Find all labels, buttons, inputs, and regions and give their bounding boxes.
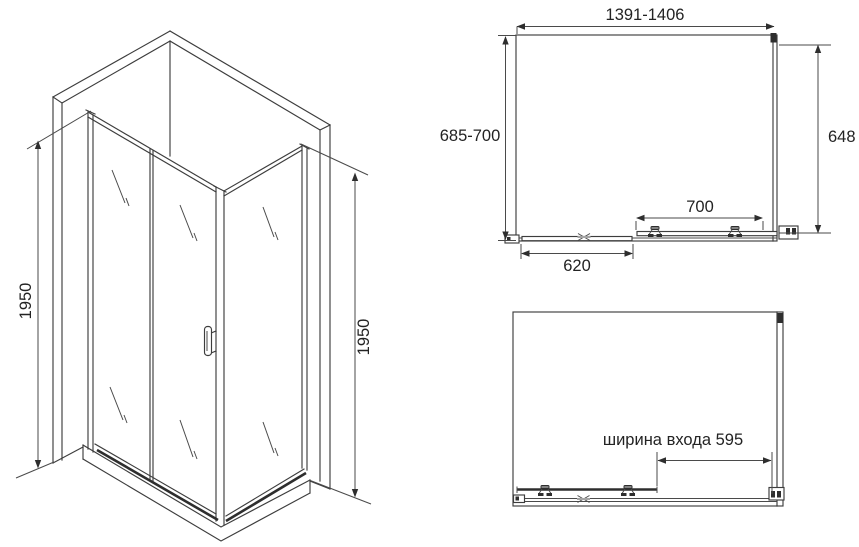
shower-enclosure-drawing: 1950 1950 bbox=[0, 0, 859, 547]
dimension-entrance-width: ширина входа 595 bbox=[603, 431, 772, 494]
front-left-glass-wall bbox=[86, 110, 226, 525]
dimension-width-range: 1391-1406 bbox=[517, 6, 775, 34]
dimension-door-width: 620 bbox=[521, 244, 633, 275]
shower-tray bbox=[53, 445, 330, 541]
open-sliding-door bbox=[514, 485, 785, 503]
iso-view: 1950 1950 bbox=[16, 31, 373, 541]
door-handle bbox=[205, 327, 217, 356]
dim-side-panel-label: 648 bbox=[828, 128, 856, 146]
plan-fixed-panel bbox=[637, 226, 798, 239]
plan-outline bbox=[516, 33, 777, 241]
dim-entrance-width-label: ширина входа 595 bbox=[603, 431, 743, 449]
dim-height-left-label: 1950 bbox=[17, 283, 35, 320]
dim-panel-width-label: 700 bbox=[686, 198, 714, 216]
dimension-panel-width: 700 bbox=[636, 198, 763, 230]
dimension-height-right: 1950 bbox=[301, 144, 373, 504]
glass-reflection-marks bbox=[110, 170, 278, 459]
dim-depth-range-label: 685-700 bbox=[440, 127, 501, 145]
dim-width-range-label: 1391-1406 bbox=[606, 6, 685, 24]
dim-height-right-label: 1950 bbox=[355, 319, 373, 356]
front-right-glass-wall bbox=[224, 144, 309, 521]
dimension-depth-range: 685-700 bbox=[440, 36, 516, 241]
wall-profile-bracket bbox=[778, 313, 784, 323]
wall-profile-bracket bbox=[771, 33, 777, 43]
drawing-canvas: 1950 1950 bbox=[0, 0, 859, 547]
dim-door-width-label: 620 bbox=[563, 257, 591, 275]
open-outline bbox=[513, 312, 783, 506]
dimension-side-panel: 648 bbox=[779, 45, 856, 234]
back-right-wall bbox=[170, 31, 330, 489]
open-plan-view: ширина входа 595 bbox=[513, 312, 784, 506]
plan-view: 1391-1406 685-700 648 700 bbox=[440, 6, 856, 275]
